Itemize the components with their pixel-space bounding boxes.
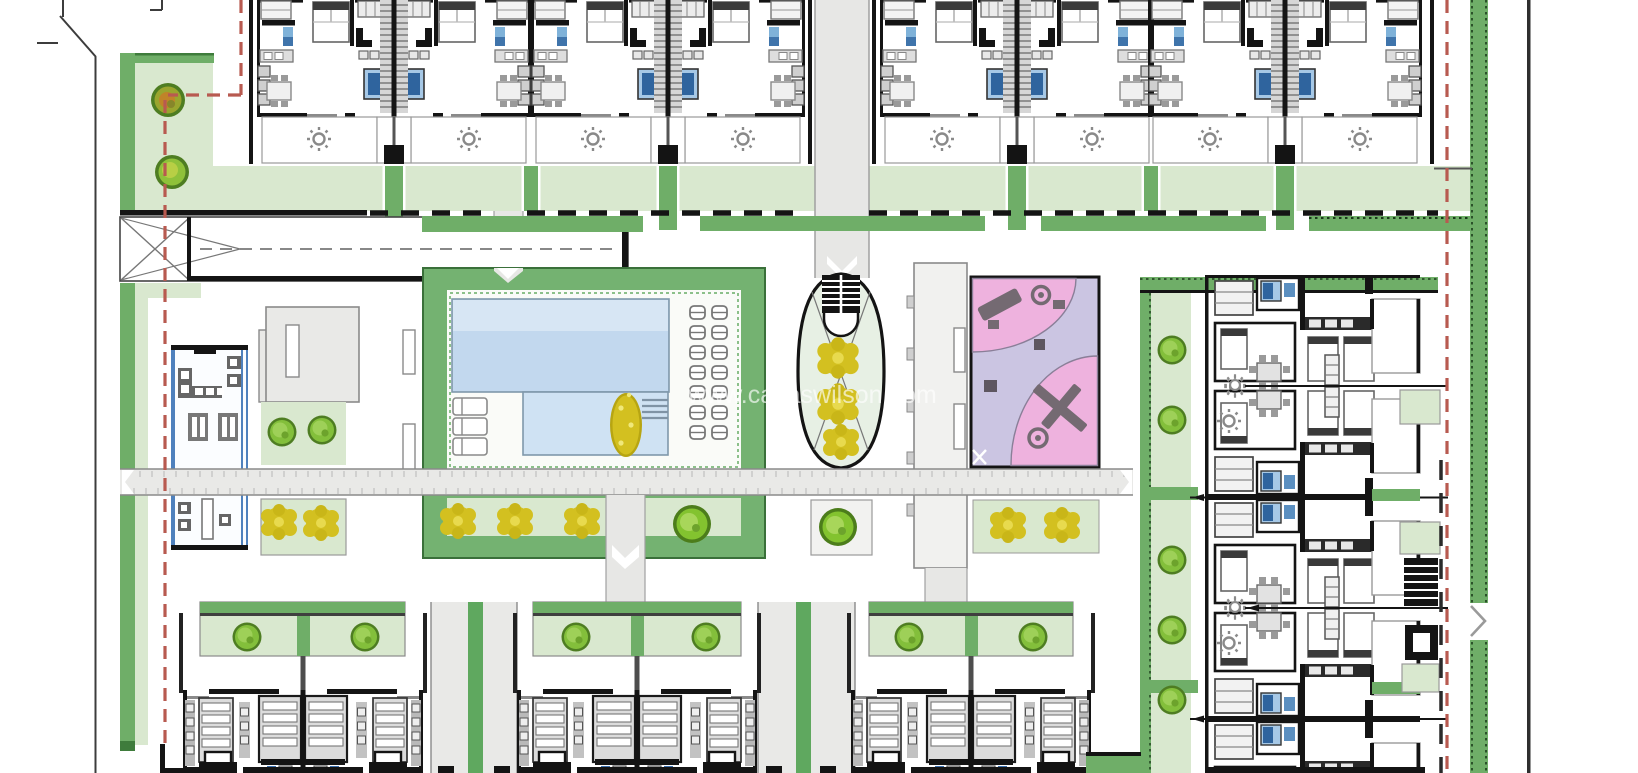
svg-text:www.casaswilson.com: www.casaswilson.com	[687, 381, 937, 409]
